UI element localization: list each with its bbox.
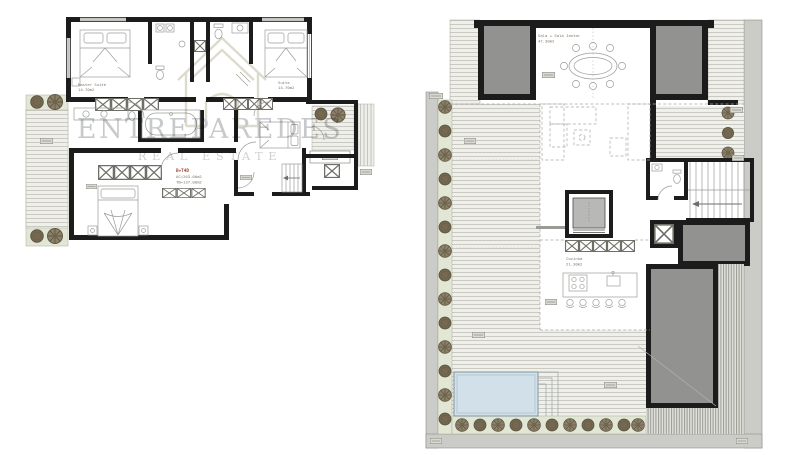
bar-stools <box>566 299 626 307</box>
plant-icon <box>439 221 451 233</box>
deck <box>450 20 480 104</box>
kitchen-island-icon <box>563 271 637 307</box>
plant-icon <box>331 108 345 122</box>
plant-icon <box>439 341 452 354</box>
plant-icon <box>439 293 452 306</box>
tag-label <box>730 107 742 112</box>
staircase-icon <box>282 164 302 192</box>
bed-icon <box>265 30 307 77</box>
area-line: AC=203.00m2 <box>176 174 202 179</box>
bed-icon <box>80 30 130 77</box>
plant-icon <box>31 96 44 109</box>
right-floor-plan: Sala + Sala Jantar 47.30m2 <box>424 12 772 453</box>
wardrobe-icon <box>224 98 273 109</box>
plant-icon <box>439 245 452 258</box>
plant-icon <box>582 419 594 431</box>
plant-icon <box>48 229 63 244</box>
deck <box>708 20 744 104</box>
room-suite: Suite 14.70m2 <box>265 30 307 90</box>
wardrobe-icon <box>99 166 162 180</box>
room-master-suite: Master Suite 14.70m2 <box>72 30 130 92</box>
toilet-icon <box>214 24 223 39</box>
vanity <box>232 23 248 33</box>
skylight <box>484 26 530 94</box>
tag-label <box>736 438 747 443</box>
room-kitchen: Cozinha 21.30m2 <box>563 240 637 307</box>
plant-icon <box>600 419 613 432</box>
tag-label <box>40 138 52 143</box>
plant-icon <box>439 197 452 210</box>
room-area: 47.30m2 <box>538 39 555 44</box>
plant-icon <box>632 419 645 432</box>
tag-label <box>430 438 441 443</box>
roof-volume <box>651 269 713 403</box>
shaft-icon <box>325 165 340 178</box>
nightstand-icon <box>88 226 97 235</box>
shaft-icon <box>655 225 673 243</box>
title-block: B+T4D AC=203.00m2 TB=137.00m2 <box>173 165 223 187</box>
pool <box>454 372 538 416</box>
room-label: Cozinha <box>566 256 583 261</box>
room-dining: Sala + Sala Jantar 47.30m2 <box>538 28 626 100</box>
sink-icon <box>101 111 107 117</box>
tag-label <box>545 299 556 304</box>
planters-mid-right <box>722 107 734 159</box>
plant-icon <box>439 317 451 329</box>
tag-label <box>86 184 97 189</box>
bathroom-2 <box>214 23 250 86</box>
deck <box>452 104 540 416</box>
left-floor-plan: Master Suite 14.70m2 Suite 14.70m2 <box>10 14 382 280</box>
sink-icon <box>237 25 243 31</box>
roof-hatch <box>646 408 744 434</box>
garden-strip-left <box>438 100 452 434</box>
wardrobe-icon <box>566 240 635 251</box>
plant-icon <box>439 149 452 162</box>
wardrobe-icon <box>163 188 206 197</box>
room-area: 21.30m2 <box>566 262 583 267</box>
plant-icon <box>528 419 541 432</box>
plant-icon <box>510 419 522 431</box>
plant-icon <box>492 419 505 432</box>
toilet-icon <box>129 112 135 121</box>
floor-plan-sheet: Master Suite 14.70m2 Suite 14.70m2 <box>0 0 800 455</box>
plant-icon <box>474 419 486 431</box>
room-living <box>542 104 650 160</box>
toilet-icon <box>673 170 681 183</box>
room-suite-3 <box>260 122 300 148</box>
bathtub-icon <box>142 110 200 138</box>
plant-icon <box>546 419 558 431</box>
plant-icon <box>439 413 451 425</box>
tag-label <box>429 93 442 98</box>
hall-bathroom <box>74 108 200 138</box>
left-terrace <box>26 95 68 247</box>
plant-icon <box>456 419 469 432</box>
elevator-icon <box>536 194 609 234</box>
sink-icon <box>655 165 659 169</box>
plant-icon <box>564 419 577 432</box>
plant-icon <box>618 419 630 431</box>
wardrobe-icon <box>96 99 159 111</box>
deck <box>26 110 68 228</box>
shaft-icon <box>194 40 205 51</box>
toilet-icon <box>156 66 164 80</box>
area-line: TB=137.00m2 <box>176 180 202 185</box>
plant-icon <box>439 173 451 185</box>
room-area: 14.70m2 <box>278 85 295 90</box>
deck <box>540 330 646 416</box>
tag-label <box>240 175 251 180</box>
plant-icon <box>315 108 327 120</box>
tag-label <box>472 332 484 337</box>
plant-icon <box>439 269 451 281</box>
tag-label <box>604 382 616 387</box>
plant-icon <box>31 230 44 243</box>
room-area: 14.70m2 <box>78 87 95 92</box>
nightstand-icon <box>139 226 148 235</box>
skylight <box>656 26 702 94</box>
bed-icon <box>260 122 300 148</box>
right-balcony <box>310 104 374 175</box>
sofa-icon <box>550 107 626 156</box>
plant-icon <box>439 101 452 114</box>
plant-icon <box>722 127 733 138</box>
bathroom-1 <box>156 24 185 80</box>
sink-icon <box>179 41 185 47</box>
room-bedroom <box>86 166 161 236</box>
shower-icon <box>236 72 250 86</box>
plant-icon <box>48 95 63 110</box>
staircase-icon <box>688 162 750 218</box>
garden-strip-bottom <box>452 416 646 434</box>
bed-icon <box>98 186 138 236</box>
deck <box>358 104 374 166</box>
room-wc <box>652 164 681 200</box>
tag-label <box>542 72 554 77</box>
sink-icon <box>83 111 89 117</box>
washer-icon <box>168 26 173 31</box>
tag-label <box>732 155 743 160</box>
plant-icon <box>439 365 451 377</box>
plant-icon <box>439 125 451 137</box>
tag-label <box>360 169 371 174</box>
tag-label <box>464 138 475 143</box>
room-label: Sala + Sala Jantar <box>538 33 581 38</box>
roof-volume <box>683 225 745 261</box>
plant-icon <box>439 389 452 402</box>
washer-icon <box>158 26 163 31</box>
